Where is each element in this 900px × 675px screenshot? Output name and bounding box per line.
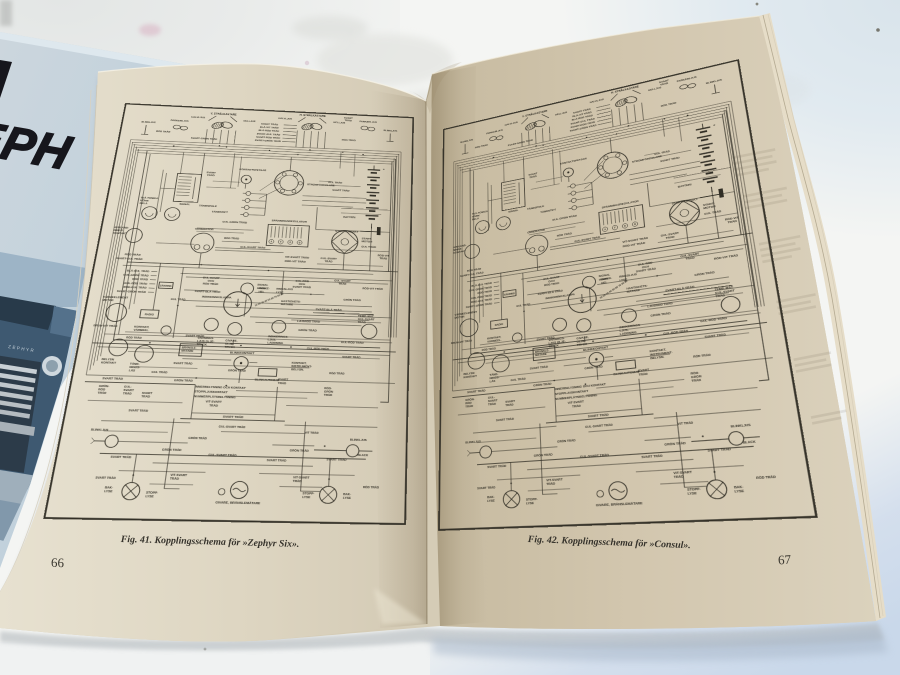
- svg-text:GRÖN TRÅD: GRÖN TRÅD: [584, 364, 603, 371]
- svg-text:SVART TRÅD: SVART TRÅD: [267, 459, 287, 463]
- svg-text:HALVLJUS: HALVLJUS: [278, 117, 292, 120]
- svg-text:RÖD TRÅD: RÖD TRÅD: [475, 143, 489, 149]
- svg-text:SVART: SVART: [638, 367, 651, 373]
- svg-text:GRÖN TRÅD: GRÖN TRÅD: [188, 436, 207, 440]
- svg-text:LYSE: LYSE: [343, 496, 352, 500]
- svg-text:TRÅD: TRÅD: [345, 119, 353, 122]
- svg-text:GUL TRÅD: GUL TRÅD: [511, 377, 527, 383]
- svg-text:PARKERLJUS: PARKERLJUS: [486, 128, 504, 135]
- svg-text:RÖD TRÅD: RÖD TRÅD: [126, 336, 143, 340]
- svg-text:RINGSLJUS: RINGSLJUS: [619, 274, 638, 280]
- svg-text:SVART TRÅD: SVART TRÅD: [110, 455, 132, 459]
- svg-text:LYSE: LYSE: [302, 495, 311, 499]
- svg-text:STOPPLJUSKONTAKT: STOPPLJUSKONTAKT: [194, 390, 228, 395]
- svg-text:TRÅD: TRÅD: [293, 479, 302, 483]
- svg-text:RÖD TRÅD: RÖD TRÅD: [756, 474, 778, 480]
- svg-text:HALVLJUS: HALVLJUS: [191, 116, 206, 119]
- svg-text:TÄNDSTIFT: TÄNDSTIFT: [540, 208, 557, 215]
- svg-text:TRÅD: TRÅD: [170, 477, 180, 481]
- svg-text:LYSE: LYSE: [104, 490, 114, 494]
- svg-text:SVART-GUL TRÅD: SVART-GUL TRÅD: [116, 257, 143, 261]
- svg-text:GUL-SVART TRÅD: GUL-SVART TRÅD: [240, 246, 266, 250]
- svg-text:HEL: HEL: [601, 282, 609, 286]
- svg-text:GUL-GRÖN TRÅD: GUL-GRÖN TRÅD: [552, 214, 577, 222]
- svg-text:TRÅD: TRÅD: [141, 395, 151, 399]
- svg-text:SVART TRÅD: SVART TRÅD: [477, 485, 496, 491]
- svg-text:LYSE: LYSE: [688, 492, 699, 496]
- svg-text:SVART TRÅD: SVART TRÅD: [342, 355, 361, 359]
- svg-text:SVART-BLÅ TRÅD: SVART-BLÅ TRÅD: [315, 308, 342, 312]
- svg-text:LYSE: LYSE: [734, 490, 745, 494]
- svg-text:HALVLJUS: HALVLJUS: [505, 120, 519, 126]
- svg-text:GUL TRÅD: GUL TRÅD: [361, 245, 376, 249]
- svg-text:TRÅD: TRÅD: [379, 257, 387, 260]
- svg-text:LYSE: LYSE: [487, 500, 496, 504]
- svg-text:BLINKLJUS: BLINKLJUS: [350, 439, 367, 442]
- svg-text:RÖD TRÅD: RÖD TRÅD: [224, 237, 240, 241]
- svg-text:SVART TRÅD: SVART TRÅD: [487, 464, 507, 470]
- svg-text:TRÅD: TRÅD: [358, 321, 367, 325]
- svg-text:GIVARE, BRÄNSLEMÄTARE: GIVARE, BRÄNSLEMÄTARE: [596, 501, 644, 508]
- svg-text:GUL-GRÖN TRÅD: GUL-GRÖN TRÅD: [222, 221, 247, 225]
- svg-text:SÄKRING: SÄKRING: [160, 284, 173, 288]
- svg-text:LYSE: LYSE: [526, 502, 535, 506]
- svg-text:LYSE: LYSE: [145, 495, 154, 499]
- svg-text:SVART-GRÖN TRÅD: SVART-GRÖN TRÅD: [508, 138, 534, 147]
- svg-text:BLINKLJUS: BLINKLJUS: [465, 441, 482, 445]
- svg-text:STRÖMFÖRDELARE: STRÖMFÖRDELARE: [632, 154, 663, 164]
- svg-text:BLINKLJUS: BLINKLJUS: [706, 79, 723, 85]
- svg-text:GRÖN TRÅD: GRÖN TRÅD: [343, 298, 361, 302]
- svg-text:SPÄNNINGSREGULATOR: SPÄNNINGSREGULATOR: [272, 219, 308, 223]
- svg-text:PARKERLJUS: PARKERLJUS: [359, 120, 377, 123]
- svg-text:TRÅD: TRÅD: [207, 174, 215, 177]
- svg-text:BLINKLJUS: BLINKLJUS: [141, 122, 156, 124]
- svg-text:RÖD TRÅD: RÖD TRÅD: [329, 372, 345, 376]
- svg-text:SVART-BLÅ TRÅD: SVART-BLÅ TRÅD: [665, 285, 696, 293]
- svg-text:KONTAKTSPETSAR: KONTAKTSPETSAR: [560, 157, 588, 166]
- svg-text:GRÖN TRÅD: GRÖN TRÅD: [557, 438, 577, 444]
- svg-text:RÖD-VIT TRÅD: RÖD-VIT TRÅD: [285, 260, 307, 264]
- svg-text:GRÖN TRÅD: GRÖN TRÅD: [664, 441, 687, 448]
- svg-text:SVART TRÅD: SVART TRÅD: [530, 365, 549, 371]
- svg-text:KONTAKT: KONTAKT: [113, 232, 128, 236]
- svg-text:BLINKLJUS: BLINKLJUS: [384, 130, 398, 132]
- svg-text:TÄNDSPOLE: TÄNDSPOLE: [527, 204, 545, 211]
- svg-text:GUL-SVART TRÅD: GUL-SVART TRÅD: [208, 453, 237, 457]
- svg-text:GRÖN TRÅD: GRÖN TRÅD: [650, 311, 672, 318]
- svg-text:SVART TRÅD: SVART TRÅD: [707, 447, 732, 454]
- svg-text:GUL-RÖD TRÅD: GUL-RÖD TRÅD: [307, 347, 330, 351]
- svg-text:RADIO: RADIO: [495, 322, 504, 327]
- svg-text:VIT TRÅD: VIT TRÅD: [305, 431, 320, 435]
- svg-text:HALVLJUS: HALVLJUS: [589, 97, 604, 104]
- svg-text:SVART TRÅD: SVART TRÅD: [332, 189, 350, 193]
- svg-text:GIVARE, BRÄNSLEMÄTARE: GIVARE, BRÄNSLEMÄTARE: [215, 501, 261, 506]
- svg-text:SIGNAL: SIGNAL: [179, 203, 191, 206]
- svg-text:B: B: [634, 223, 637, 226]
- svg-text:VÄRMEEL.: VÄRMEEL.: [133, 328, 150, 332]
- svg-text:GUL-SVART TRÅD: GUL-SVART TRÅD: [585, 423, 614, 430]
- svg-text:GRÖN TRÅD: GRÖN TRÅD: [174, 379, 194, 383]
- svg-text:BELYSN.: BELYSN.: [291, 368, 304, 372]
- svg-text:NUMMERPLÅTSBELYSNING: NUMMERPLÅTSBELYSNING: [194, 395, 237, 400]
- svg-text:STARTKONTAKT: STARTKONTAKT: [672, 197, 700, 206]
- svg-text:RÖD TRÅD: RÖD TRÅD: [156, 130, 171, 133]
- svg-text:SVART-GRÖN TRÅD: SVART-GRÖN TRÅD: [255, 139, 282, 143]
- svg-text:LÅS: LÅS: [129, 369, 136, 373]
- svg-text:GRÖN TRÅD: GRÖN TRÅD: [228, 369, 247, 373]
- svg-text:GRÖN TRÅD: GRÖN TRÅD: [298, 329, 317, 333]
- svg-text:MÄTARE: MÄTARE: [281, 303, 294, 307]
- svg-text:GRÖN TRÅD: GRÖN TRÅD: [290, 449, 310, 453]
- svg-text:SVART TRÅD: SVART TRÅD: [660, 156, 681, 164]
- svg-text:BELYSN.: BELYSN.: [650, 356, 665, 361]
- svg-text:HEL: HEL: [258, 290, 265, 293]
- svg-text:GUL TRÅD: GUL TRÅD: [170, 298, 186, 302]
- svg-text:RÖD TRÅD: RÖD TRÅD: [203, 282, 219, 286]
- svg-text:SVART TRÅD: SVART TRÅD: [185, 334, 204, 338]
- svg-text:RÖD-VIT TRÅD: RÖD-VIT TRÅD: [362, 287, 383, 291]
- svg-text:GRÖN TRÅD: GRÖN TRÅD: [694, 270, 716, 277]
- svg-text:V. STRÅLKASTARE: V. STRÅLKASTARE: [210, 111, 237, 117]
- svg-text:SVART TRÅD: SVART TRÅD: [641, 453, 664, 459]
- svg-text:+: +: [713, 124, 717, 127]
- svg-text:HELLJUS: HELLJUS: [243, 120, 256, 123]
- svg-text:PARKERLJUS: PARKERLJUS: [677, 75, 698, 83]
- svg-text:RADIO: RADIO: [144, 313, 154, 317]
- svg-text:HELLJUS: HELLJUS: [648, 87, 662, 93]
- svg-text:A: A: [604, 227, 607, 231]
- svg-text:TRÅD: TRÅD: [324, 260, 332, 263]
- svg-text:BRUN-VIT TRÅD: BRUN-VIT TRÅD: [93, 324, 118, 328]
- svg-text:RÖD TRÅD: RÖD TRÅD: [342, 139, 356, 142]
- svg-text:TÄNDSPOLE: TÄNDSPOLE: [199, 204, 218, 208]
- svg-text:SVART TRÅD: SVART TRÅD: [292, 286, 311, 290]
- svg-text:VIT TRÅD: VIT TRÅD: [677, 420, 694, 426]
- svg-text:BELA: BELA: [139, 202, 148, 205]
- svg-text:GUL-SVART TRÅD: GUL-SVART TRÅD: [218, 425, 246, 429]
- svg-text:SVART TRÅD: SVART TRÅD: [173, 362, 193, 366]
- svg-text:BLINKLJUS: BLINKLJUS: [731, 424, 753, 429]
- svg-text:TRÅD: TRÅD: [278, 382, 287, 386]
- svg-text:RÖD TRÅD: RÖD TRÅD: [363, 486, 380, 490]
- svg-text:SVART TRÅD: SVART TRÅD: [128, 409, 148, 413]
- svg-text:GRÖN TRÅD: GRÖN TRÅD: [534, 452, 554, 458]
- svg-text:SVART TRÅD: SVART TRÅD: [102, 377, 123, 381]
- svg-text:KONTAKT: KONTAKT: [101, 361, 117, 365]
- svg-text:BATTERI: BATTERI: [343, 216, 356, 219]
- svg-text:MÄTARE: MÄTARE: [181, 349, 194, 353]
- svg-text:SVART TRÅD: SVART TRÅD: [95, 476, 116, 480]
- svg-text:GUL-GRÖN TRÅD: GUL-GRÖN TRÅD: [123, 273, 149, 277]
- svg-text:RÖD TRÅD: RÖD TRÅD: [661, 101, 678, 108]
- svg-text:O: O: [624, 225, 627, 228]
- svg-text:RÖD TRÅD: RÖD TRÅD: [693, 353, 712, 360]
- svg-text:TRÅD: TRÅD: [97, 391, 107, 395]
- svg-text:GUL TRÅD: GUL TRÅD: [151, 371, 168, 375]
- svg-text:RÖD-VIT TRÅD: RÖD-VIT TRÅD: [714, 253, 740, 261]
- svg-text:PARKERLJUS: PARKERLJUS: [170, 119, 189, 123]
- svg-text:SVART TRÅD: SVART TRÅD: [496, 417, 515, 423]
- svg-text:MOTOR: MOTOR: [102, 299, 114, 303]
- svg-text:GUL-RÖD TRÅD: GUL-RÖD TRÅD: [663, 329, 689, 337]
- svg-text:+: +: [383, 168, 385, 172]
- svg-text:F: F: [614, 227, 616, 230]
- svg-text:KONTAKTSPETSAR: KONTAKTSPETSAR: [239, 168, 266, 172]
- svg-text:TRÅD: TRÅD: [324, 393, 333, 397]
- svg-text:SVART TRÅD: SVART TRÅD: [223, 415, 244, 419]
- svg-text:GUL TRÅD: GUL TRÅD: [704, 209, 723, 216]
- svg-text:BATTERI: BATTERI: [678, 182, 693, 189]
- svg-text:GRÖN TRÅD: GRÖN TRÅD: [162, 448, 182, 452]
- svg-text:GUL-SVART TRÅD: GUL-SVART TRÅD: [574, 235, 601, 243]
- svg-text:TRÅD: TRÅD: [209, 404, 218, 408]
- svg-text:BLINKLJUS: BLINKLJUS: [460, 139, 474, 144]
- svg-text:TRÅD: TRÅD: [338, 282, 346, 285]
- svg-text:BLACK: BLACK: [357, 453, 368, 457]
- svg-text:BLACK: BLACK: [743, 439, 758, 445]
- svg-text:HELLJUS: HELLJUS: [555, 112, 568, 117]
- svg-text:TÄNDSTIFT: TÄNDSTIFT: [212, 210, 229, 214]
- svg-text:SVART-GRÖN TRÅD: SVART-GRÖN TRÅD: [191, 137, 218, 141]
- svg-text:TRÅD: TRÅD: [123, 392, 133, 396]
